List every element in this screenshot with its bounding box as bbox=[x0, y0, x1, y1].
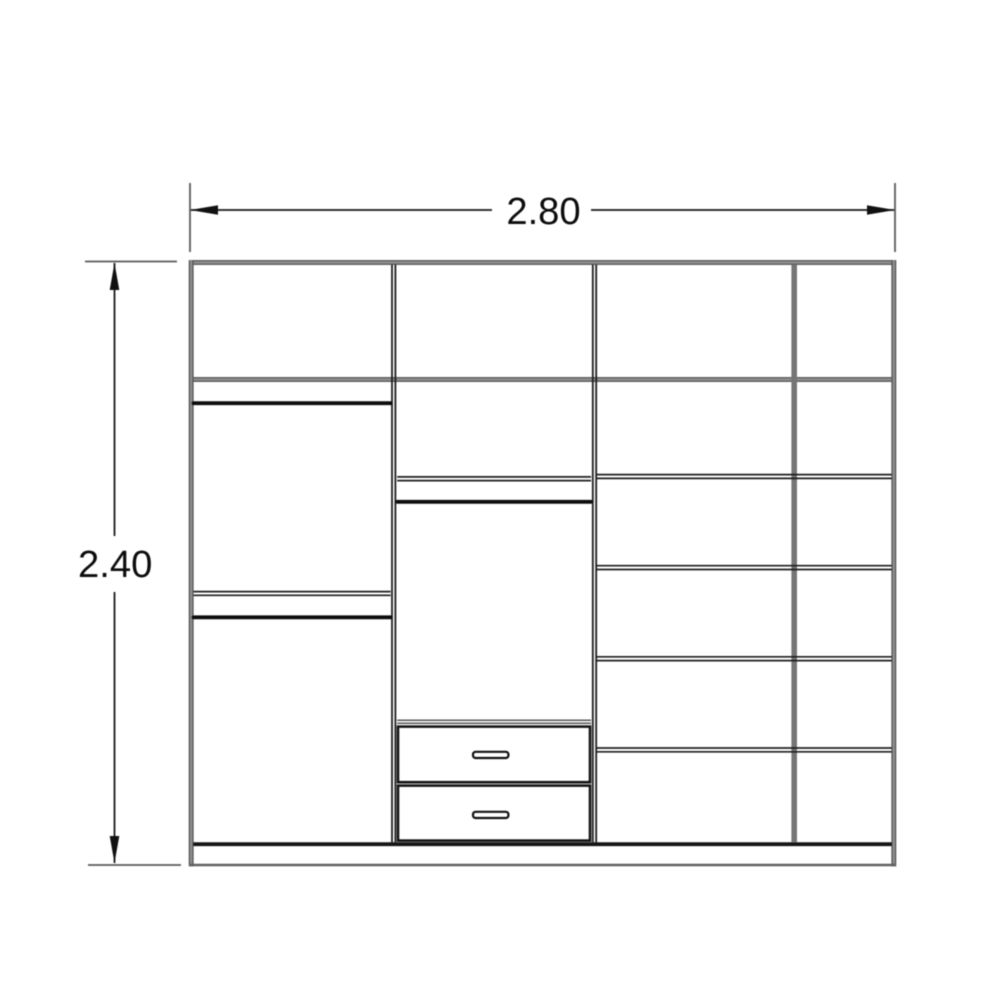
svg-text:2.80: 2.80 bbox=[506, 190, 580, 233]
svg-text:2.40: 2.40 bbox=[78, 543, 152, 586]
